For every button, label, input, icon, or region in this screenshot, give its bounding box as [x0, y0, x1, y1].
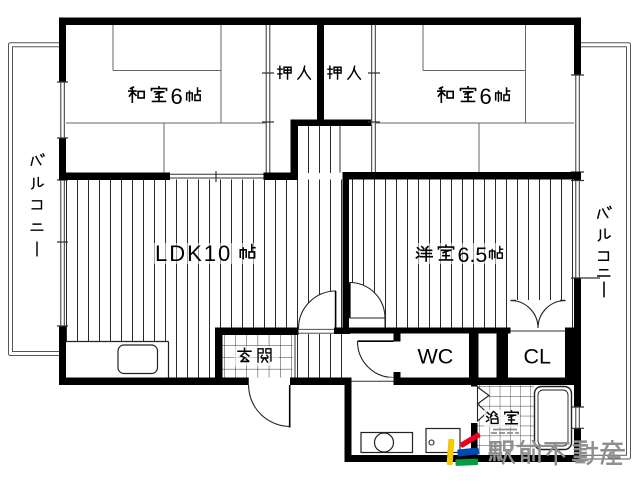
svg-text:LDK10: LDK10 — [155, 241, 232, 266]
svg-text:CL: CL — [524, 345, 552, 369]
svg-text:6: 6 — [171, 84, 183, 109]
svg-text:6: 6 — [480, 84, 492, 109]
svg-text:WC: WC — [418, 345, 454, 369]
svg-text:6.5: 6.5 — [458, 243, 488, 267]
